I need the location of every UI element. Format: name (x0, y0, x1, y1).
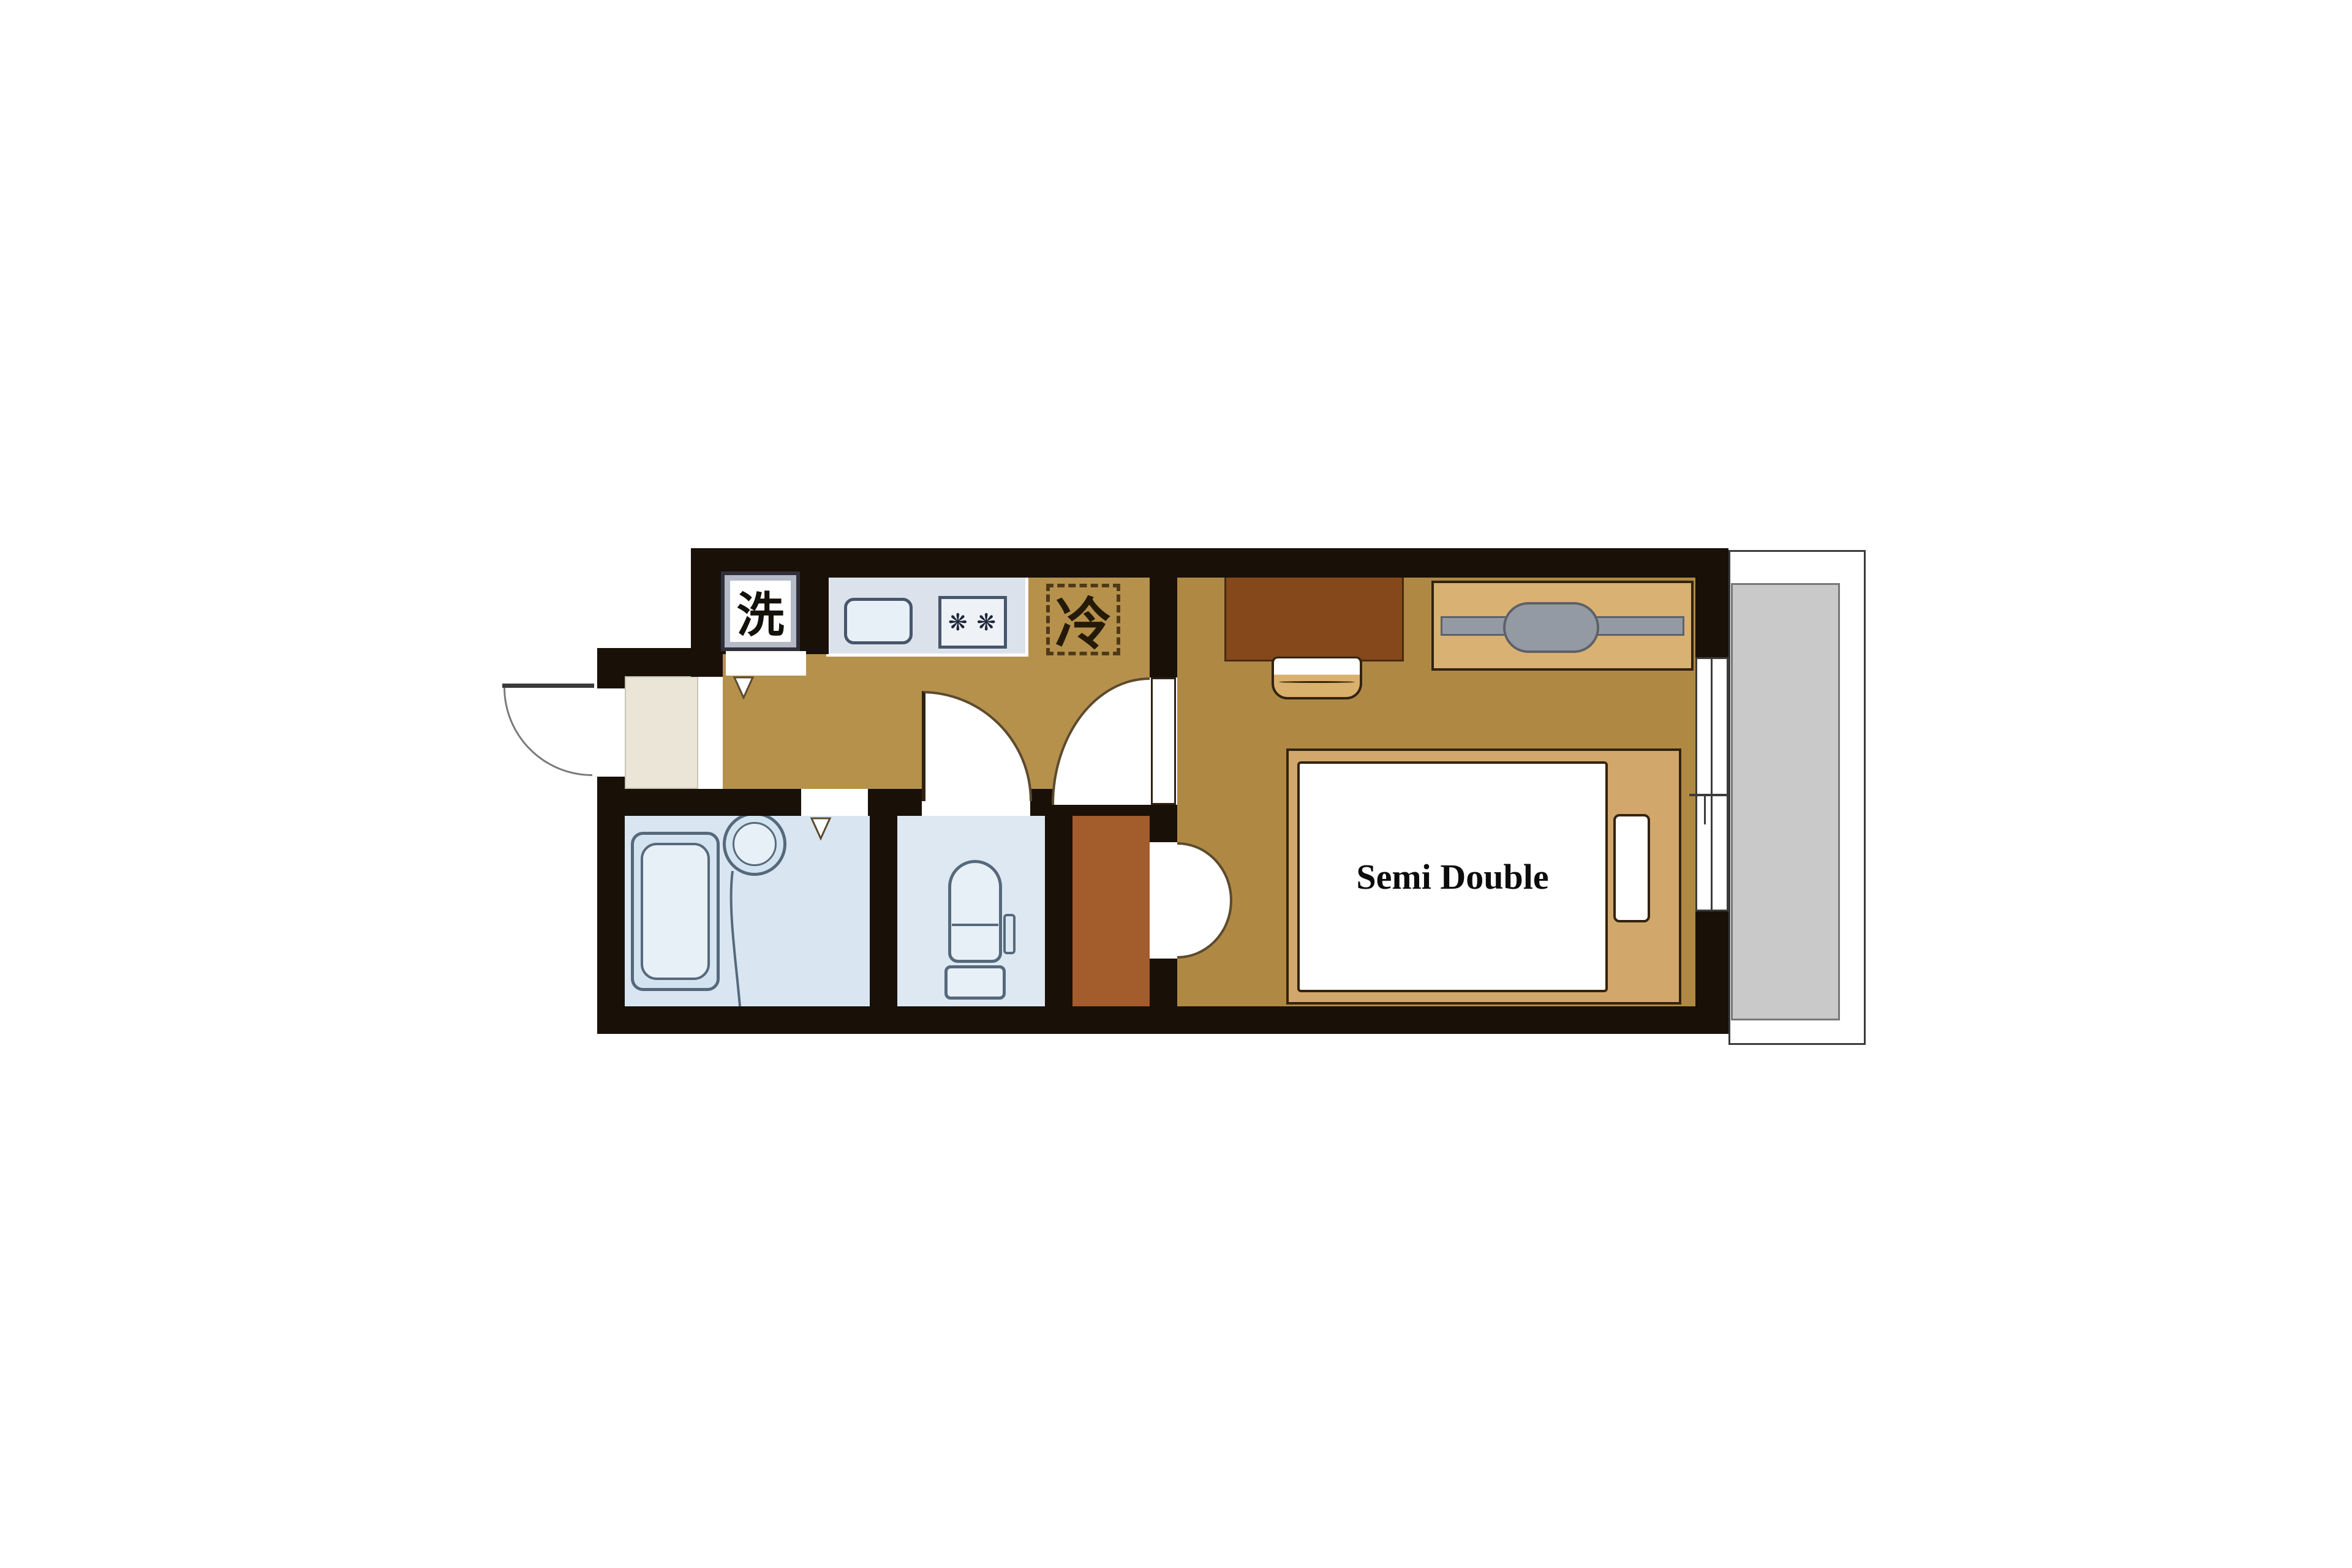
refrigerator-space: 冷 (1046, 584, 1120, 655)
wall-right-lower (1695, 911, 1728, 1006)
hanger-rod-slider (1503, 602, 1599, 653)
bed-pillow (1613, 814, 1650, 922)
bed-mattress: Semi Double (1297, 761, 1608, 992)
washing-machine-label: 洗 (730, 581, 791, 642)
toilet-armrest (1003, 914, 1016, 954)
bathtub-inner (641, 843, 710, 980)
floor-plan: Semi Double ❋ ❋ 洗 冷 (0, 0, 2352, 1568)
closet-floor (1072, 816, 1150, 1006)
kitchen-sink (844, 598, 913, 644)
toilet-seat-line (952, 924, 998, 926)
sliding-window-latch-stub (1704, 796, 1706, 824)
genkan-step-edge (698, 676, 723, 789)
toilet-tank (944, 965, 1006, 1000)
sliding-window-latch (1689, 794, 1735, 796)
wall-toilet-closet (1045, 816, 1072, 1006)
wall-bedroom-west-mid (1150, 805, 1177, 842)
balcony-floor (1731, 583, 1840, 1020)
door-direction-marker (733, 676, 755, 699)
toilet-bowl (948, 860, 1002, 963)
wall-right-upper (1695, 578, 1728, 657)
gas-stove: ❋ ❋ (938, 596, 1007, 649)
wall-wet-a (625, 789, 801, 816)
sliding-window-divider (1711, 659, 1713, 910)
stove-burners-icon: ❋ ❋ (948, 609, 997, 636)
wall-bedroom-west-lower (1150, 959, 1177, 1034)
door-direction-marker (810, 817, 832, 840)
entrance-door-swing (503, 687, 592, 776)
wall-bath-toilet (870, 816, 897, 1006)
washer-niche-opening (726, 651, 806, 676)
desk (1224, 576, 1404, 661)
wash-basin-inner (733, 822, 777, 866)
bedroom-door-leaf (1151, 677, 1176, 805)
wall-bedroom-west-upper (1150, 578, 1177, 677)
wall-wet-b (868, 789, 922, 816)
wall-top (691, 548, 1728, 578)
wall-entry-left-stub (597, 648, 625, 688)
desk-chair-seat-line (1279, 681, 1355, 683)
bath-partition-line (726, 871, 745, 1007)
bed-size-label: Semi Double (1356, 856, 1548, 897)
entrance-door-leaf (502, 684, 594, 688)
wall-left-lower (597, 777, 625, 1034)
genkan-step (625, 676, 698, 789)
desk-chair (1272, 657, 1362, 699)
